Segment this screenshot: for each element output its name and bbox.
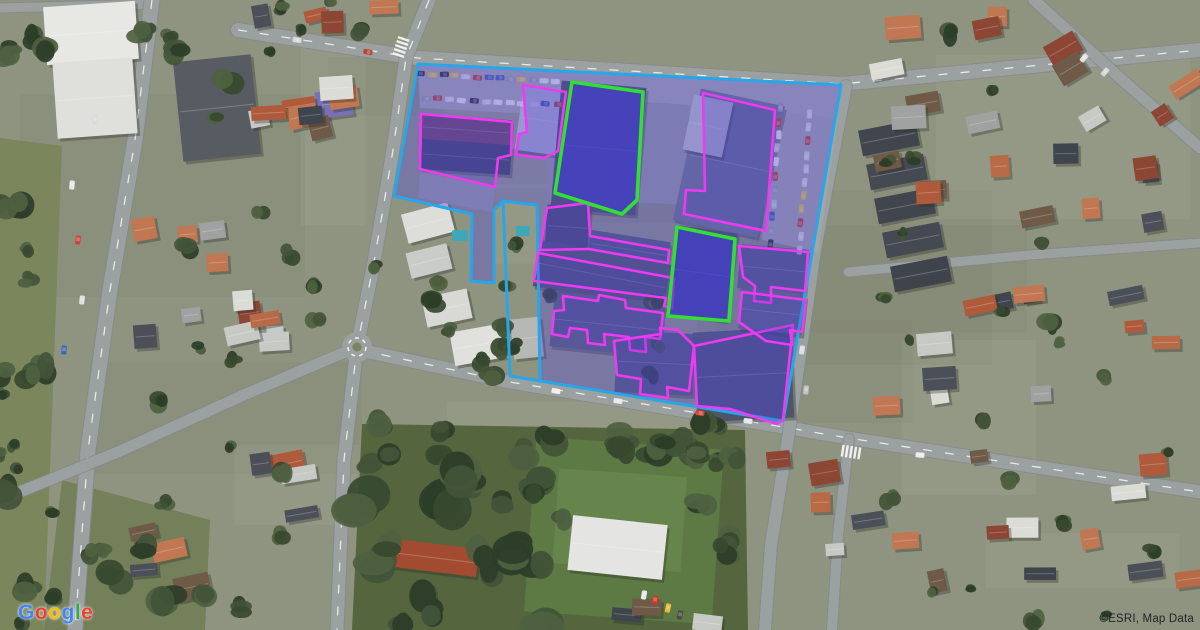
map-attribution: ©ESRI, Map Data <box>1099 613 1194 625</box>
google-logo-letter: e <box>81 601 93 625</box>
highlight-building-polygon[interactable] <box>668 227 735 321</box>
satellite-map-image[interactable] <box>0 0 1200 630</box>
google-logo-letter: o <box>35 601 48 625</box>
map-viewport[interactable]: Google ©ESRI, Map Data <box>0 0 1200 630</box>
google-logo-letter: o <box>48 601 61 625</box>
google-logo-letter: G <box>18 601 35 625</box>
google-logo-letter: g <box>62 601 75 625</box>
highlight-building-polygon[interactable] <box>555 82 643 214</box>
google-logo: Google <box>18 601 93 625</box>
